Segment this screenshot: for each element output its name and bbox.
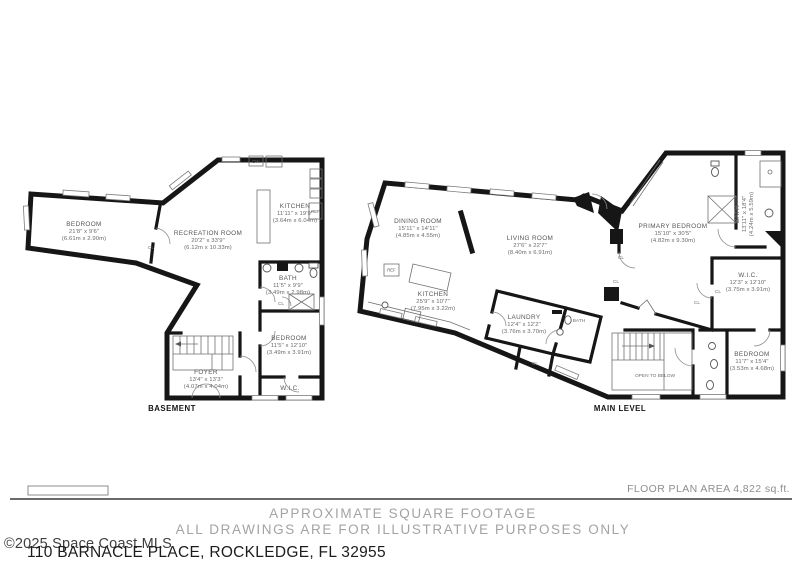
- basement-title: BASEMENT: [148, 404, 196, 413]
- window: [781, 345, 786, 371]
- main-bedroom-dims: 11'7" x 15'4": [735, 359, 768, 365]
- main-kitchen-name: KITCHEN: [418, 291, 449, 298]
- toilet-icon: [711, 161, 719, 166]
- window: [532, 193, 556, 200]
- closet-label: CL: [148, 245, 154, 251]
- powder-room-fixtures: [707, 343, 718, 390]
- wic-name: W.I.C.: [738, 272, 758, 279]
- closet-label: CL: [618, 255, 624, 261]
- door-arc: [492, 312, 506, 326]
- closet-label: CL: [613, 279, 619, 285]
- closet-label: CL: [278, 301, 284, 307]
- basement-bedroom-dims: 21'8" x 9'6": [69, 229, 99, 235]
- door-arc: [240, 356, 256, 372]
- floor-plan-page: DW REF BEDROOM 21'8" x 9'6" (6.61m x 2.9…: [0, 0, 800, 566]
- sink-icon: [557, 329, 563, 335]
- window: [222, 157, 240, 162]
- main-exterior-walls: [360, 153, 783, 397]
- basement-bedroom2-name: BEDROOM: [271, 335, 306, 342]
- toilet-icon: [310, 269, 317, 278]
- wic-dims: 12'3" x 12'10": [730, 280, 767, 286]
- footer: FLOOR PLAN AREA 4,822 sq.ft. APPROXIMATE…: [4, 483, 792, 561]
- vanity: [552, 310, 562, 314]
- main-bedroom-name: BEDROOM: [734, 351, 769, 358]
- sink-icon: [382, 302, 388, 308]
- door-arc: [675, 348, 693, 366]
- living-room-metric: (8.40m x 6.91m): [508, 250, 552, 256]
- window-band: [630, 160, 660, 204]
- closet-wall: [610, 229, 623, 244]
- basement-kitchen-dims: 11'11" x 19'9": [277, 211, 313, 217]
- toilet-icon: [565, 316, 571, 324]
- wic-metric: (3.75m x 3.91m): [726, 287, 770, 293]
- shower-icon: [708, 196, 736, 223]
- basement-kitchen-name: KITCHEN: [280, 203, 311, 210]
- basement-plan: DW REF BEDROOM 21'8" x 9'6" (6.61m x 2.9…: [23, 156, 324, 413]
- recreation-room-name: RECREATION ROOM: [174, 230, 242, 237]
- basement-bath-metric: (3.49m x 2.98m): [266, 290, 310, 296]
- sliding-door: [700, 395, 726, 400]
- basement-bedroom-name: BEDROOM: [66, 221, 101, 228]
- vanity: [277, 263, 288, 271]
- main-kitchen-metric: (7.95m x 3.22m): [411, 306, 455, 312]
- ref-label: REF: [387, 268, 396, 273]
- primary-bath-dims: 13'11" x 18'4": [742, 196, 748, 233]
- closet-label: CL: [715, 289, 721, 295]
- living-room-name: LIVING ROOM: [507, 235, 553, 242]
- sink-icon: [295, 264, 303, 272]
- foyer-metric: (4.07m x 4.04m): [184, 384, 228, 390]
- dw-label: DW: [252, 159, 260, 164]
- main-stairs-icon: [612, 333, 692, 390]
- recreation-room-metric: (6.12m x 10.33m): [184, 245, 232, 251]
- dining-room-dims: 15'11" x 14'11": [398, 226, 437, 232]
- basement-kitchen-fixtures: DW REF: [249, 156, 322, 243]
- door-arc: [156, 228, 170, 244]
- living-room-partial-wall: [461, 213, 472, 251]
- basement-kitchen-metric: (3.64m x 6.04m): [273, 218, 317, 224]
- living-room-dims: 27'6" x 22'7": [513, 243, 547, 249]
- basement-bedroom2-metric: (3.49m x 3.91m): [267, 350, 311, 356]
- window: [362, 250, 368, 276]
- disclaimer-line1: APPROXIMATE SQUARE FOOTAGE: [269, 506, 537, 521]
- address-text: 110 BARNACLE PLACE, ROCKLEDGE, FL 32955: [27, 544, 386, 561]
- sliding-door: [632, 395, 660, 400]
- laundry-metric: (3.76m x 3.70m): [502, 329, 546, 335]
- primary-bedroom-metric: (4.82m x 9.30m): [651, 238, 695, 244]
- main-bedroom-metric: (3.53m x 4.68m): [730, 366, 774, 372]
- window: [23, 206, 29, 230]
- laundry-name: LAUNDRY: [508, 314, 541, 321]
- shower-icon: [289, 294, 314, 310]
- dining-room-name: DINING ROOM: [394, 218, 442, 225]
- toilet-icon: [309, 263, 318, 268]
- dining-room-metric: (4.85m x 4.55m): [396, 233, 440, 239]
- foyer-dims: 13'4" x 13'3": [189, 377, 223, 383]
- kitchen-island: [409, 264, 451, 291]
- bath-corner-wall: [765, 231, 783, 249]
- sink-icon: [263, 264, 271, 272]
- window: [447, 186, 471, 193]
- basement-bedroom2-dims: 11'5" x 12'10": [271, 343, 308, 349]
- closet-label: CL: [532, 361, 538, 367]
- closet-label: CL: [694, 300, 700, 306]
- primary-bath-name: BATH: [734, 205, 741, 223]
- entry-wall: [573, 192, 594, 213]
- open-to-below-label: OPEN TO BELOW: [635, 373, 676, 379]
- window: [745, 151, 761, 156]
- door-arc: [718, 229, 736, 247]
- toilet-icon: [712, 168, 719, 177]
- sliding-door: [252, 396, 278, 401]
- basement-bedroom-metric: (6.61m x 2.90m): [62, 236, 106, 242]
- basement-bath-name: BATH: [279, 275, 297, 282]
- main-level-plan: REF DINING: [360, 151, 785, 414]
- toilet-icon: [711, 360, 718, 369]
- recreation-room-dims: 20'2" x 33'9": [191, 238, 225, 244]
- door-arc: [754, 330, 770, 346]
- drain: [768, 170, 772, 174]
- window-band: [633, 162, 663, 206]
- basement-wic-label: W.I.C.: [280, 385, 300, 392]
- basement-bath-dims: 11'5" x 9'9": [273, 283, 303, 289]
- main-level-title: MAIN LEVEL: [594, 404, 646, 413]
- floor-plan-drawing: DW REF BEDROOM 21'8" x 9'6" (6.61m x 2.9…: [0, 0, 800, 566]
- entry-wall: [598, 196, 622, 232]
- basement-stairs-icon: [173, 336, 233, 370]
- primary-bedroom-name: PRIMARY BEDROOM: [639, 223, 708, 230]
- primary-bath-metric: (4.24m x 5.59m): [749, 192, 755, 236]
- toilet-icon: [707, 381, 714, 390]
- primary-bedroom-dims: 15'10" x 30'5": [655, 231, 692, 237]
- main-kitchen-dims: 25'9" x 10'7": [416, 299, 450, 305]
- double-door-chevron: [638, 300, 656, 314]
- scale-bar-icon: [28, 486, 108, 495]
- sink-icon: [765, 209, 773, 217]
- door-arc: [697, 283, 712, 298]
- disclaimer-line2: ALL DRAWINGS ARE FOR ILLUSTRATIVE PURPOS…: [176, 522, 631, 537]
- sink-icon: [709, 343, 716, 350]
- laundry-dims: 12'4" x 12'2": [507, 322, 541, 328]
- window: [320, 297, 325, 325]
- foyer-name: FOYER: [194, 369, 218, 376]
- kitchen-island: [257, 190, 270, 243]
- sliding-door: [286, 396, 312, 401]
- window: [405, 182, 429, 189]
- floor-plan-area-text: FLOOR PLAN AREA 4,822 sq.ft.: [627, 483, 790, 495]
- hall-bath-label: BATH: [573, 318, 586, 324]
- closet-wall: [604, 287, 619, 301]
